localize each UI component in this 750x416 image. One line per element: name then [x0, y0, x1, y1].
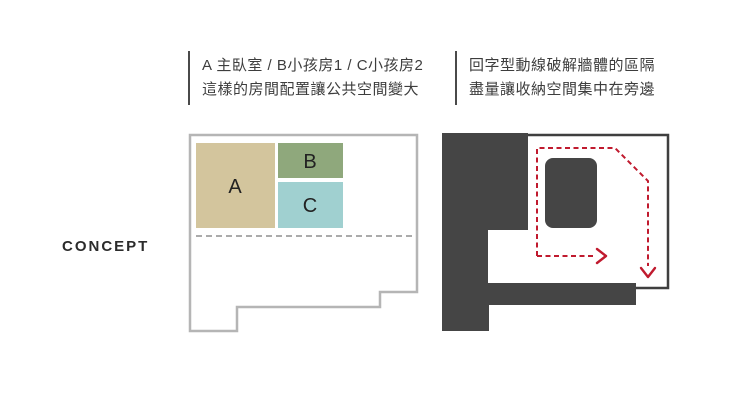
storage-wall-mass	[442, 133, 636, 331]
right-floor-plan	[442, 133, 668, 331]
center-island-block	[545, 158, 597, 228]
arrow-down-icon	[641, 268, 655, 277]
arrow-right-icon	[597, 249, 606, 263]
room-b-label: B	[303, 151, 316, 173]
concept-diagram-page: CONCEPT A 主臥室 / B小孩房1 / C小孩房2 這樣的房間配置讓公共…	[0, 0, 750, 416]
floor-plans-graphic: A B C	[0, 0, 750, 416]
room-c-label: C	[303, 195, 317, 217]
left-floor-plan: A B C	[190, 135, 417, 331]
room-a-label: A	[228, 176, 242, 198]
